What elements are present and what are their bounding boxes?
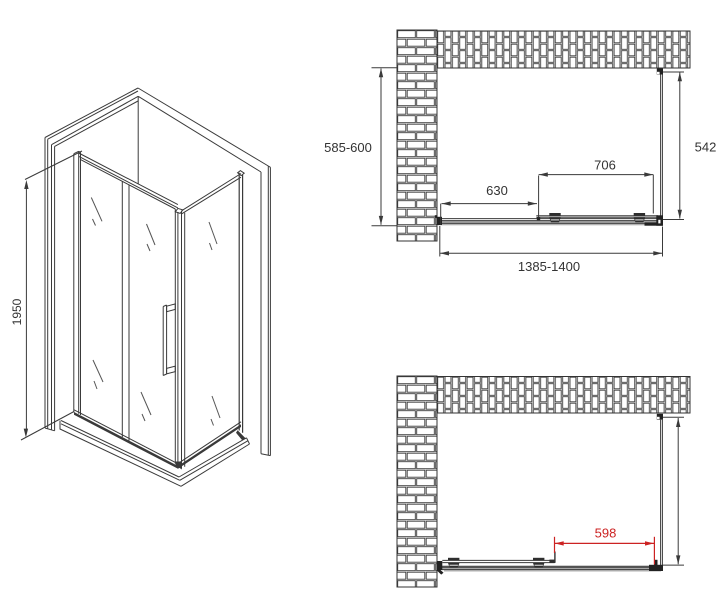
- svg-text:542: 542: [695, 140, 717, 155]
- svg-text:585-600: 585-600: [324, 140, 372, 155]
- svg-text:630: 630: [486, 183, 508, 198]
- svg-text:706: 706: [594, 158, 616, 173]
- svg-text:1950: 1950: [10, 298, 24, 325]
- svg-text:1385-1400: 1385-1400: [518, 259, 580, 274]
- svg-text:598: 598: [595, 526, 617, 541]
